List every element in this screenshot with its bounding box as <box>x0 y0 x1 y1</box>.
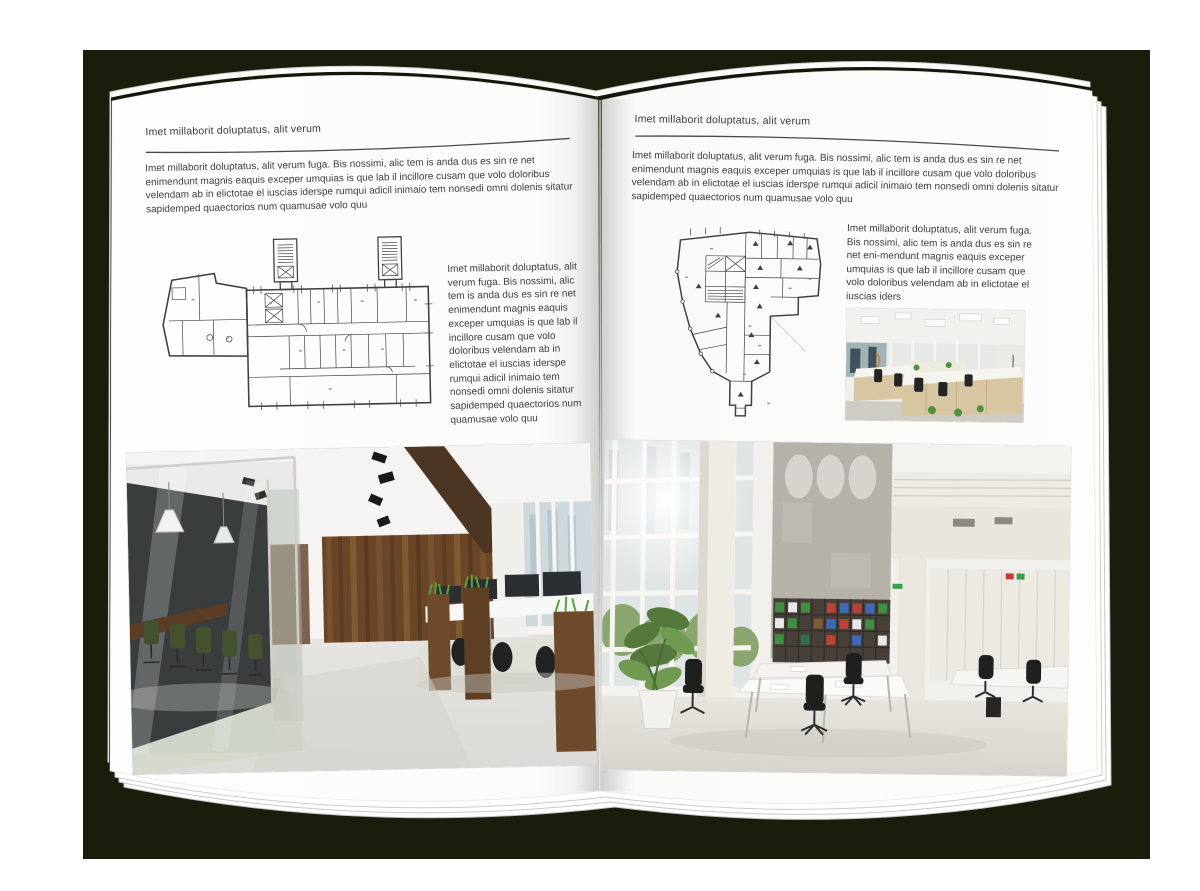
office-photo-right <box>600 440 1071 776</box>
floor-plan-left-drawing <box>151 226 445 416</box>
office-photo-left <box>126 443 597 775</box>
office-photo-right-scene <box>600 440 1071 776</box>
left-page-header: Imet millaborit doluptatus, alit verum <box>145 117 575 138</box>
office-photo-left-scene <box>126 443 597 775</box>
floor-plan-right-drawing <box>648 218 829 422</box>
left-page-side-text: Imet millaborit doluptatus, alit verum f… <box>447 260 587 427</box>
left-page-intro: Imet millaborit doluptatus, alit verum f… <box>145 153 573 216</box>
right-page-header: Imet millaborit doluptatus, alit verum <box>634 113 1064 131</box>
magazine-mockup: Imet millaborit doluptatus, alit verum I… <box>0 0 1200 891</box>
office-photo-small <box>845 308 1025 422</box>
right-page-intro: Imet millaborit doluptatus, alit verum f… <box>631 149 1061 209</box>
floor-plan-right <box>648 218 829 422</box>
office-photo-small-scene <box>845 308 1025 422</box>
right-page: Imet millaborit doluptatus, alit verum I… <box>595 92 1085 799</box>
right-page-paragraph: Imet millaborit doluptatus, alit verum f… <box>846 222 1045 306</box>
floor-plan-left <box>151 226 445 416</box>
left-page: Imet millaborit doluptatus, alit verum I… <box>113 95 597 795</box>
